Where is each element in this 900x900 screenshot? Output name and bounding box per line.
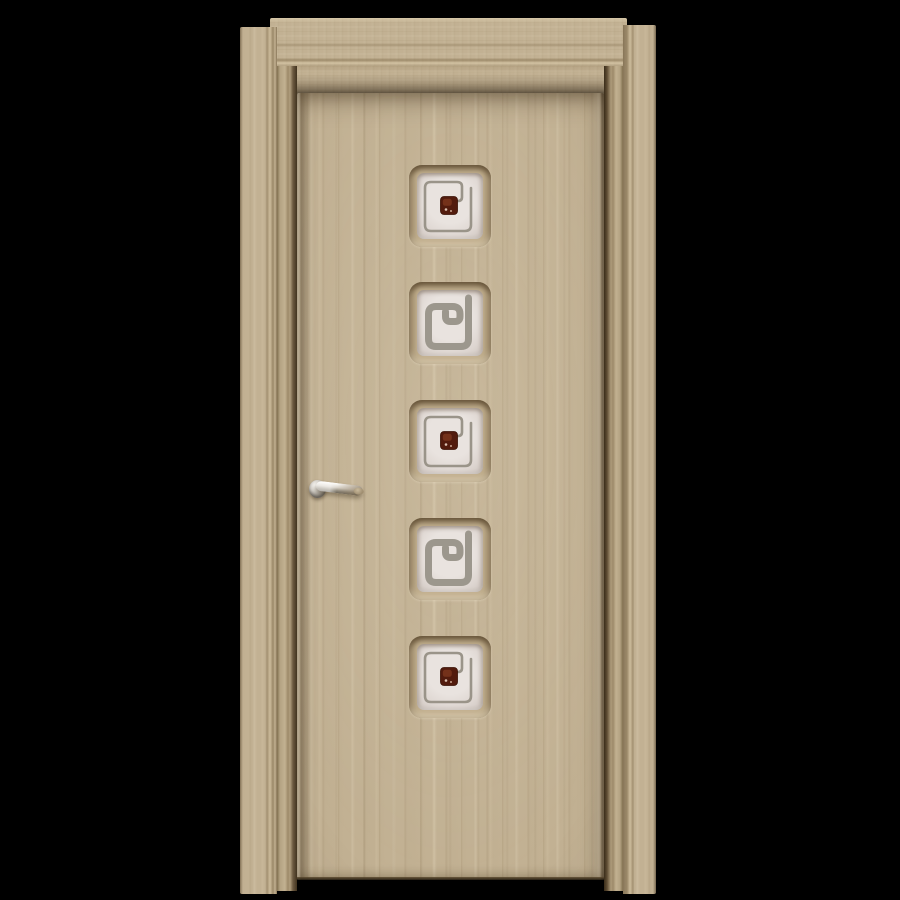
frosted-glass-insert [417, 526, 483, 592]
glass-motif-thick-spiral-icon [417, 290, 483, 356]
glass-panel-3 [409, 400, 491, 482]
glass-panel-4 [409, 518, 491, 600]
glass-motif-thin-spiral-bead-icon [417, 644, 483, 710]
photo-background [0, 0, 900, 900]
glass-motif-thin-spiral-bead-icon [417, 173, 483, 239]
door-frame-head-jamb [277, 66, 623, 94]
door-frame-left-jamb [277, 66, 297, 891]
frosted-glass-insert [417, 173, 483, 239]
door-bottom-gap-shadow [297, 877, 604, 880]
frosted-glass-insert [417, 290, 483, 356]
glass-motif-thick-spiral-icon [417, 526, 483, 592]
door-frame-right-jamb [604, 66, 623, 891]
glass-motif-thin-spiral-bead-icon [417, 408, 483, 474]
glass-panel-2 [409, 282, 491, 364]
glass-panel-5 [409, 636, 491, 718]
frosted-glass-insert [417, 408, 483, 474]
door-leaf [297, 93, 604, 880]
door-frame-left-casing [240, 27, 277, 894]
frosted-glass-insert [417, 644, 483, 710]
door-frame-top-casing [270, 18, 627, 68]
glass-panel-1 [409, 165, 491, 247]
door-frame-right-casing [623, 25, 656, 894]
